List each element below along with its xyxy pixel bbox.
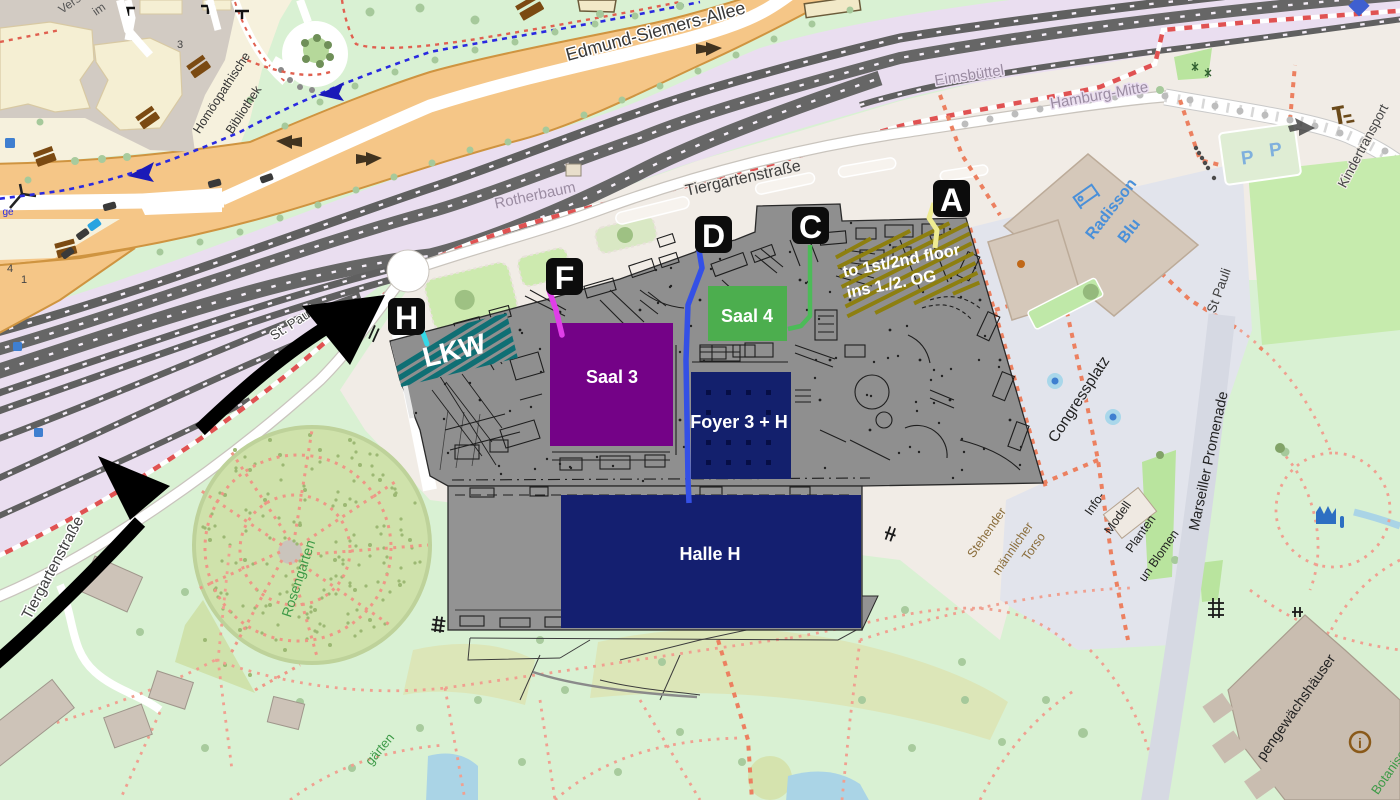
svg-text:1: 1 — [21, 274, 27, 286]
svg-text:i: i — [1358, 735, 1362, 751]
svg-text:H: H — [395, 300, 418, 336]
svg-text:Foyer 3 + H: Foyer 3 + H — [690, 412, 788, 432]
svg-text:Saal 4: Saal 4 — [721, 306, 773, 326]
svg-text:ge: ge — [2, 207, 14, 218]
svg-text:Halle H: Halle H — [679, 544, 740, 564]
svg-text:Saal 3: Saal 3 — [586, 367, 638, 387]
svg-text:4: 4 — [7, 263, 13, 275]
svg-text:A: A — [940, 182, 963, 218]
svg-text:C: C — [799, 209, 822, 245]
svg-text:3: 3 — [177, 39, 183, 51]
svg-text:D: D — [702, 218, 725, 254]
svg-text:F: F — [555, 260, 575, 296]
